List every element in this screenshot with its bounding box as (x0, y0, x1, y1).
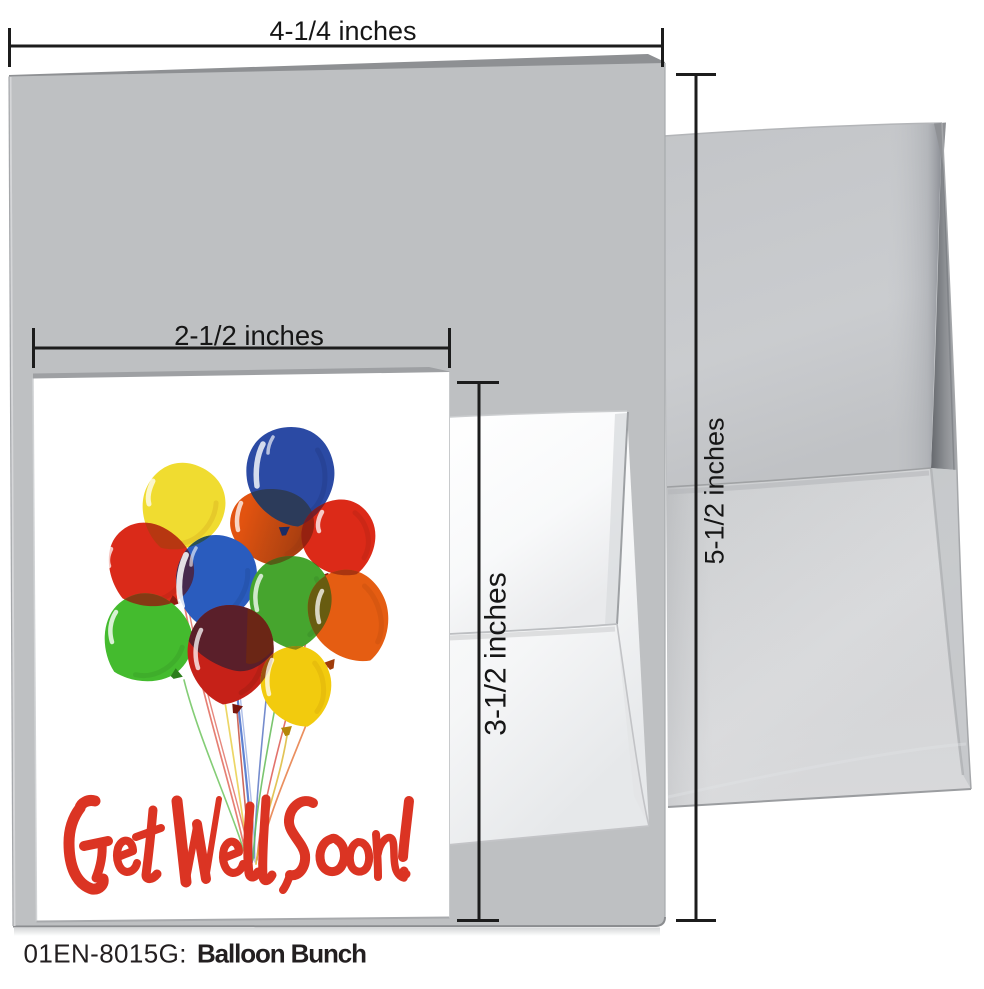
svg-text:2-1/2 inches: 2-1/2 inches (174, 320, 324, 351)
svg-text:Balloon Bunch: Balloon Bunch (197, 939, 367, 969)
svg-text:01EN-8015G:: 01EN-8015G: (24, 939, 187, 969)
svg-text:4-1/4 inches: 4-1/4 inches (269, 16, 416, 46)
svg-text:3-1/2 inches: 3-1/2 inches (480, 572, 513, 735)
svg-text:5-1/2 inches: 5-1/2 inches (700, 417, 730, 564)
